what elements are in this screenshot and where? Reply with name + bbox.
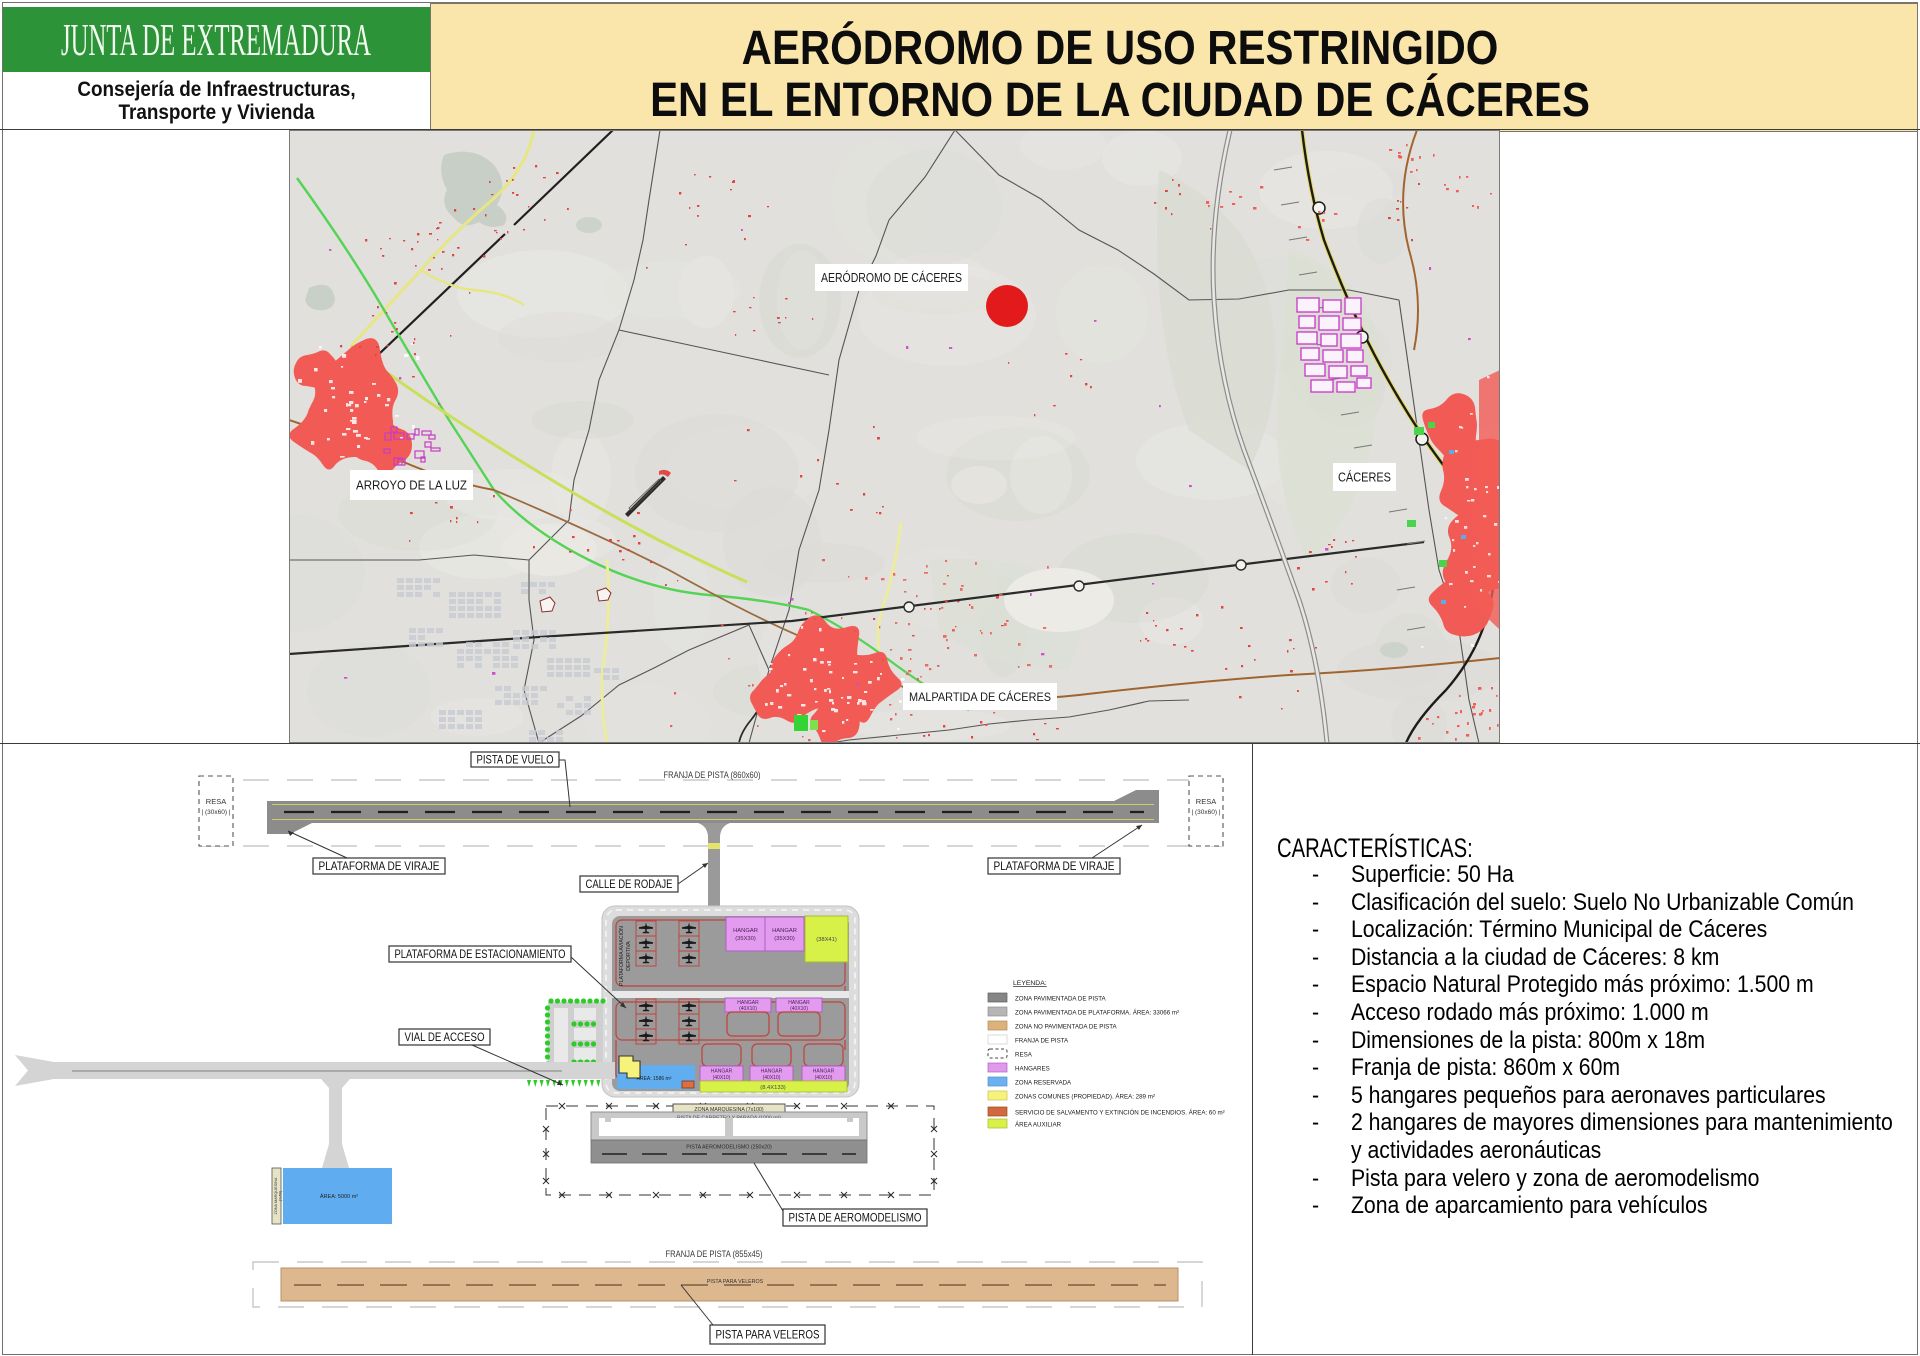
- svg-text:HANGAR: HANGAR: [772, 928, 797, 934]
- svg-text:(38X41): (38X41): [816, 937, 837, 943]
- svg-text:AERÓDROMO DE CÁCERES: AERÓDROMO DE CÁCERES: [821, 270, 962, 285]
- svg-text:ÁREA: 1586 m²: ÁREA: 1586 m²: [637, 1075, 672, 1082]
- svg-text:PISTA DE AEROMODELISMO: PISTA DE AEROMODELISMO: [789, 1211, 922, 1225]
- svg-text:(40X10): (40X10): [815, 1075, 833, 1081]
- svg-text:FRANJA DE PISTA: FRANJA DE PISTA: [1015, 1038, 1069, 1045]
- svg-text:SERVICIO DE SALVAMENTO Y EXTI: SERVICIO DE SALVAMENTO Y EXTINCIÓN DE IN…: [1015, 1110, 1225, 1117]
- svg-text:FRANJA DE PISTA (855x45): FRANJA DE PISTA (855x45): [666, 1249, 763, 1260]
- svg-text:(40X10): (40X10): [763, 1075, 781, 1081]
- svg-text:ZONA RESERVADA: ZONA RESERVADA: [1015, 1080, 1072, 1087]
- svg-text:ZONA NO PAVIMENTADA DE PISTA: ZONA NO PAVIMENTADA DE PISTA: [1015, 1024, 1118, 1031]
- svg-text:PLATAFORMA AVIACIÓN: PLATAFORMA AVIACIÓN: [618, 926, 625, 986]
- svg-text:(40X10): (40X10): [739, 1006, 757, 1012]
- svg-text:| (30x60) |: | (30x60) |: [1191, 809, 1220, 816]
- svg-text:MALPARTIDA DE CÁCERES: MALPARTIDA DE CÁCERES: [909, 689, 1051, 704]
- svg-text:PLATAFORMA DE ESTACIONAMIENTO: PLATAFORMA DE ESTACIONAMIENTO: [395, 949, 566, 961]
- svg-text:RESA: RESA: [1196, 797, 1216, 806]
- svg-text:CALLE DE RODAJE: CALLE DE RODAJE: [586, 879, 673, 891]
- svg-text:HANGAR: HANGAR: [813, 1069, 835, 1075]
- svg-text:(40X10): (40X10): [790, 1006, 808, 1012]
- svg-text:ZONA PAVIMENTADA DE PISTA: ZONA PAVIMENTADA DE PISTA: [1015, 996, 1107, 1003]
- svg-text:(40X10): (40X10): [713, 1075, 731, 1081]
- svg-text:VIAL DE ACCESO: VIAL DE ACCESO: [405, 1032, 485, 1044]
- svg-text:ÁREA: 5000 m²: ÁREA: 5000 m²: [320, 1193, 358, 1200]
- svg-text:PISTA AEROMODELISMO (250x20): PISTA AEROMODELISMO (250x20): [686, 1145, 772, 1151]
- svg-text:FRANJA DE PISTA (860x60): FRANJA DE PISTA (860x60): [664, 770, 761, 781]
- svg-text:(35X30): (35X30): [774, 936, 795, 942]
- svg-text:ZONAS COMUNES (PROPIEDAD). ÁRE: ZONAS COMUNES (PROPIEDAD). ÁREA: 289 m²: [1015, 1094, 1155, 1101]
- svg-text:PLATAFORMA DE VIRAJE: PLATAFORMA DE VIRAJE: [319, 861, 440, 873]
- svg-text:LEYENDA:: LEYENDA:: [1013, 980, 1047, 987]
- svg-text:| (30x60) |: | (30x60) |: [201, 809, 230, 816]
- svg-text:HANGAR: HANGAR: [761, 1069, 783, 1075]
- svg-text:HANGAR: HANGAR: [733, 928, 758, 934]
- svg-text:(7x50): (7x50): [279, 1190, 283, 1201]
- svg-text:ZONA PAVIMENTADA DE PLATAFORMA: ZONA PAVIMENTADA DE PLATAFORMA. ÁREA: 33…: [1015, 1010, 1179, 1017]
- svg-text:RESA: RESA: [206, 797, 226, 806]
- svg-text:PISTA DE VUELO: PISTA DE VUELO: [477, 755, 554, 767]
- svg-text:PISTA PARA VELEROS: PISTA PARA VELEROS: [716, 1328, 820, 1342]
- svg-text:(35X30): (35X30): [735, 936, 756, 942]
- svg-text:HANGAR: HANGAR: [711, 1069, 733, 1075]
- svg-text:ARROYO DE LA LUZ: ARROYO DE LA LUZ: [356, 479, 467, 493]
- svg-text:CÁCERES: CÁCERES: [1338, 470, 1391, 485]
- svg-text:RESA: RESA: [1015, 1052, 1033, 1059]
- svg-text:DEPORTIVA: DEPORTIVA: [626, 941, 632, 971]
- svg-text:JUNTA DE EXTREMADURA: JUNTA DE EXTREMADURA: [61, 14, 371, 65]
- svg-text:(8.4X133): (8.4X133): [760, 1085, 786, 1091]
- svg-text:ÁREA AUXILIAR: ÁREA AUXILIAR: [1015, 1122, 1062, 1129]
- svg-text:PLATAFORMA DE VIRAJE: PLATAFORMA DE VIRAJE: [994, 861, 1115, 873]
- svg-text:HANGARES: HANGARES: [1015, 1066, 1050, 1073]
- svg-text:ZONA MARQUESINA: ZONA MARQUESINA: [274, 1177, 278, 1214]
